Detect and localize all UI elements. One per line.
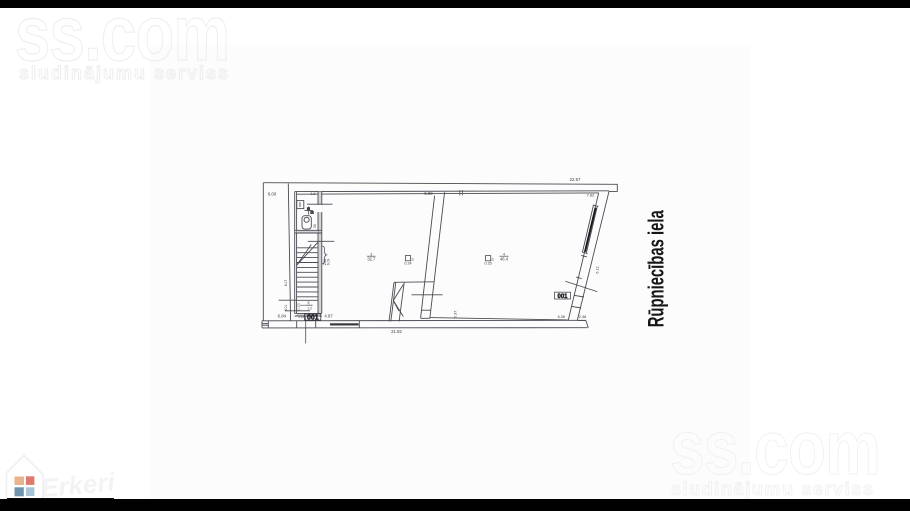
svg-text:2.48: 2.48 (579, 315, 586, 319)
svg-text:5: 5 (308, 301, 310, 305)
svg-text:1.12: 1.12 (298, 315, 304, 319)
svg-text:22.57: 22.57 (570, 177, 581, 182)
svg-text:15: 15 (490, 258, 494, 262)
svg-text:6.03: 6.03 (327, 259, 331, 266)
svg-text:4.01: 4.01 (284, 305, 288, 312)
svg-text:1.2: 1.2 (307, 307, 312, 311)
svg-text:06: 06 (313, 224, 317, 228)
svg-text:21.82: 21.82 (391, 329, 402, 334)
svg-text:(1.12): (1.12) (296, 303, 300, 311)
svg-text:46.4: 46.4 (500, 257, 509, 262)
svg-text:Rūpniecības iela: Rūpniecības iela (644, 210, 669, 328)
svg-text:6.84: 6.84 (278, 313, 287, 318)
svg-text:15: 15 (410, 258, 414, 262)
svg-text:8.17: 8.17 (284, 280, 288, 287)
svg-text:7.62: 7.62 (587, 193, 596, 198)
svg-text:6.12: 6.12 (595, 266, 599, 273)
svg-text:32.7: 32.7 (367, 257, 376, 262)
svg-text:6.36: 6.36 (558, 315, 565, 319)
svg-text:0.25: 0.25 (485, 262, 492, 266)
svg-text:5.89: 5.89 (424, 191, 433, 196)
svg-text:001: 001 (557, 294, 568, 300)
svg-text:1.8: 1.8 (311, 192, 316, 196)
svg-text:6.00: 6.00 (268, 191, 277, 196)
svg-text:0.24: 0.24 (404, 262, 411, 266)
svg-text:4.87: 4.87 (324, 313, 333, 318)
svg-text:6.37: 6.37 (453, 310, 458, 319)
